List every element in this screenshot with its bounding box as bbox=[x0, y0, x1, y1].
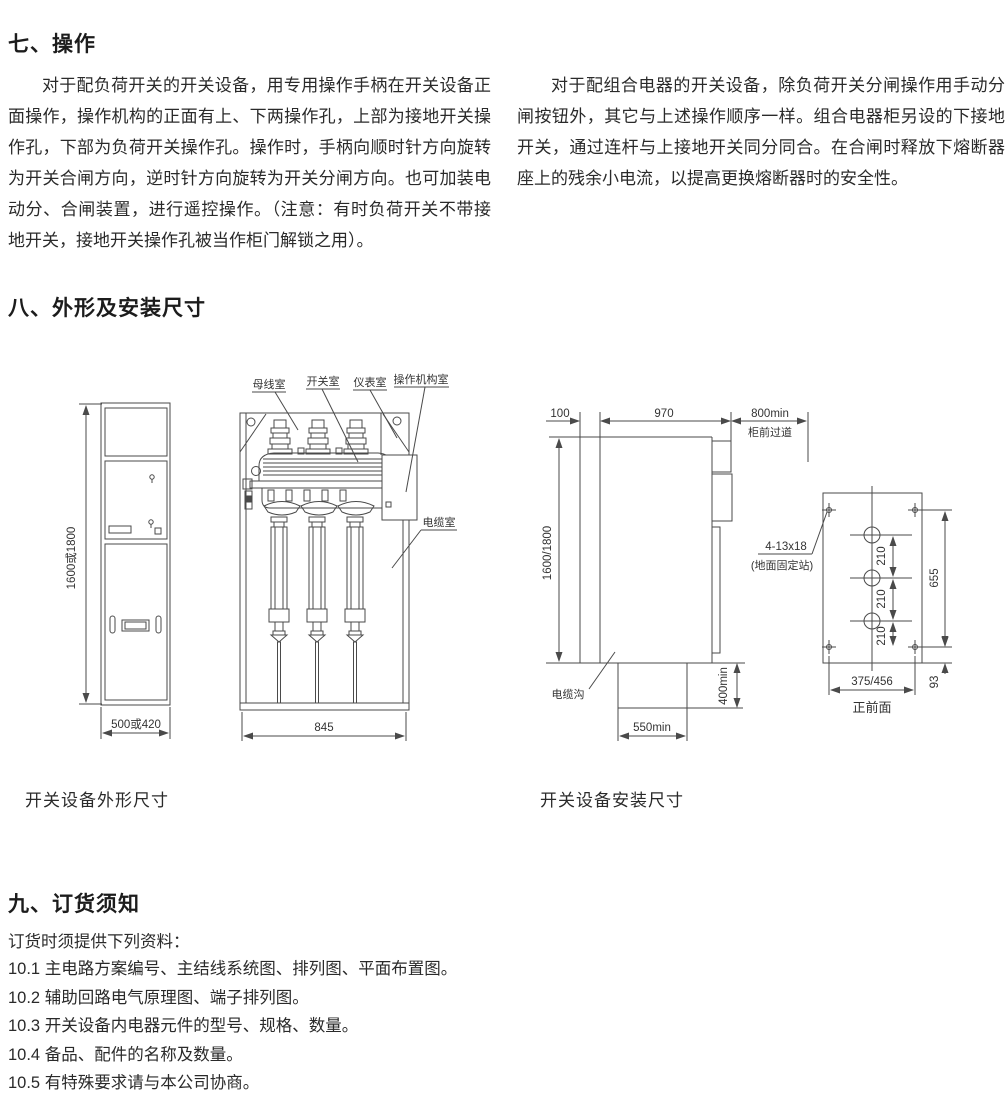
ordering-item: 10.3 开关设备内电器元件的型号、规格、数量。 bbox=[8, 1012, 708, 1041]
dim-label-93: 93 bbox=[929, 676, 941, 689]
ordering-item: 10.4 备品、配件的名称及数量。 bbox=[8, 1041, 708, 1070]
front-face-label: 正前面 bbox=[852, 700, 891, 715]
vent-slot-left bbox=[110, 616, 115, 633]
instrument-compartment-label: 仪表室 bbox=[354, 375, 387, 389]
cable-compartment-label: 电缆室 bbox=[423, 515, 456, 529]
dim-label-front-height: 1600或1800 bbox=[65, 527, 78, 590]
fixing-holes-label: 4-13x18 bbox=[765, 541, 807, 553]
dim-label-100: 100 bbox=[550, 408, 569, 420]
busbar-compartment-label: 母线室 bbox=[253, 377, 286, 391]
fuse-assembly-3 bbox=[345, 517, 365, 703]
dim-label-210-1: 210 bbox=[876, 546, 888, 565]
fuse-assembly-2 bbox=[307, 517, 327, 703]
ordering-item: 10.5 有特殊要求请与本公司协商。 bbox=[8, 1069, 708, 1098]
install-dimensions-caption: 开关设备安装尺寸 bbox=[540, 786, 684, 811]
cable-trench-label: 电缆沟 bbox=[552, 688, 585, 701]
ordering-list: 10.1 主电路方案编号、主结线系统图、排列图、平面布置图。 10.2 辅助回路… bbox=[8, 955, 708, 1098]
cabinet-outline bbox=[101, 403, 170, 705]
aisle-label: 柜前过道 bbox=[748, 425, 792, 439]
mechanism-compartment-label: 操作机构室 bbox=[394, 372, 449, 386]
dim-label-800min: 800min bbox=[751, 408, 789, 420]
dim-label-375-456: 375/456 bbox=[851, 676, 893, 688]
mechanism-protrusion-lower bbox=[712, 474, 732, 521]
install-view-diagram bbox=[546, 412, 952, 741]
cabinet-middle-panel bbox=[105, 461, 167, 539]
dim-label-210-3: 210 bbox=[876, 626, 888, 645]
dim-label-655: 655 bbox=[929, 568, 941, 587]
operation-slot bbox=[109, 526, 131, 533]
outline-dimensions-caption: 开关设备外形尺寸 bbox=[25, 786, 169, 811]
switch-body bbox=[262, 488, 398, 508]
fixing-holes-note: (地面固定站) bbox=[751, 558, 813, 572]
dim-label-210-2: 210 bbox=[876, 589, 888, 608]
mechanism-box bbox=[382, 455, 417, 520]
dim-label-970: 970 bbox=[654, 408, 673, 420]
dim-label-400min: 400min bbox=[718, 667, 730, 705]
vent-slot-right bbox=[156, 616, 161, 633]
busbar-bushings bbox=[268, 420, 368, 454]
dim-label-front-width: 500或420 bbox=[111, 718, 161, 731]
front-view-diagram bbox=[79, 403, 170, 739]
catalog-page: { "section_operation": { "title": "七、操作"… bbox=[0, 0, 1008, 1098]
front-door-panel bbox=[712, 527, 720, 653]
switch-compartment-label: 开关室 bbox=[307, 374, 340, 388]
section-ordering-title: 九、订货须知 bbox=[8, 888, 140, 918]
ordering-item: 10.2 辅助回路电气原理图、端子排列图。 bbox=[8, 984, 708, 1013]
dim-label-550min: 550min bbox=[633, 722, 671, 734]
mechanism-protrusion-upper bbox=[712, 441, 731, 472]
fuse-assembly-1 bbox=[269, 517, 289, 703]
ordering-intro: 订货时须提供下列资料： bbox=[8, 928, 190, 952]
dim-label-install-height: 1600/1800 bbox=[542, 526, 554, 580]
cabinet-top-panel bbox=[105, 408, 167, 456]
dim-label-845: 845 bbox=[314, 722, 333, 734]
ordering-item: 10.1 主电路方案编号、主结线系统图、排列图、平面布置图。 bbox=[8, 955, 708, 984]
section-view-diagram bbox=[240, 387, 457, 741]
